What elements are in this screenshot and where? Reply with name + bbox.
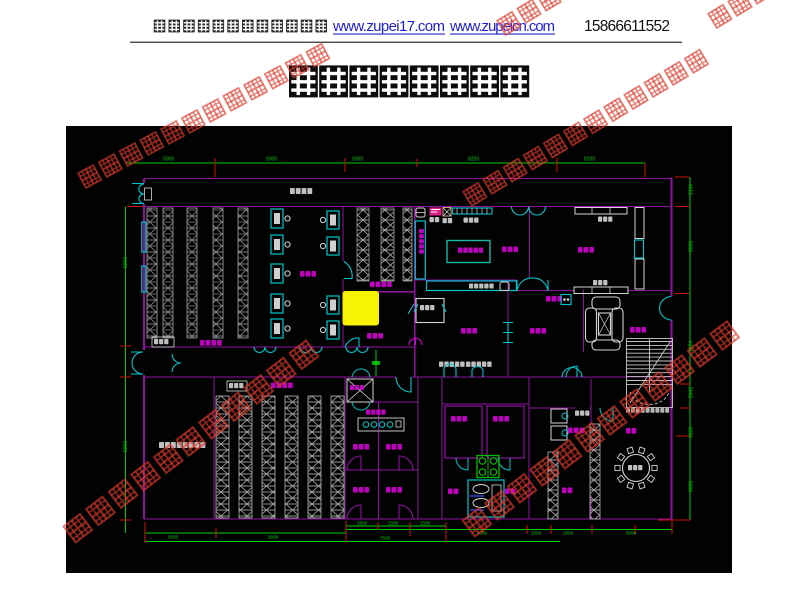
svg-text:5000: 5000 <box>266 157 277 163</box>
svg-text:2500: 2500 <box>357 521 368 526</box>
svg-text:1500: 1500 <box>420 521 431 526</box>
svg-text:7500: 7500 <box>380 536 391 541</box>
svg-text:1500: 1500 <box>531 531 542 536</box>
svg-text:2042: 2042 <box>689 387 695 398</box>
svg-text:4000: 4000 <box>689 427 695 438</box>
svg-text:5000: 5000 <box>123 441 129 452</box>
svg-text:5000: 5000 <box>163 157 174 163</box>
svg-text:15866611552: 15866611552 <box>584 18 670 35</box>
svg-text:8200: 8200 <box>584 157 595 163</box>
svg-text:5000: 5000 <box>168 535 179 540</box>
svg-text:4000: 4000 <box>689 481 695 492</box>
svg-text:9000: 9000 <box>268 535 279 540</box>
svg-text:2100: 2100 <box>689 184 695 195</box>
svg-text:2500: 2500 <box>563 531 574 536</box>
svg-text:www.zupei17.com: www.zupei17.com <box>332 18 445 35</box>
svg-text:6000: 6000 <box>689 241 695 252</box>
svg-text:2500: 2500 <box>388 521 399 526</box>
svg-text:5000: 5000 <box>626 531 637 536</box>
svg-text:8200: 8200 <box>468 157 479 163</box>
svg-text:5000: 5000 <box>123 257 129 268</box>
svg-text:5000: 5000 <box>352 157 363 163</box>
